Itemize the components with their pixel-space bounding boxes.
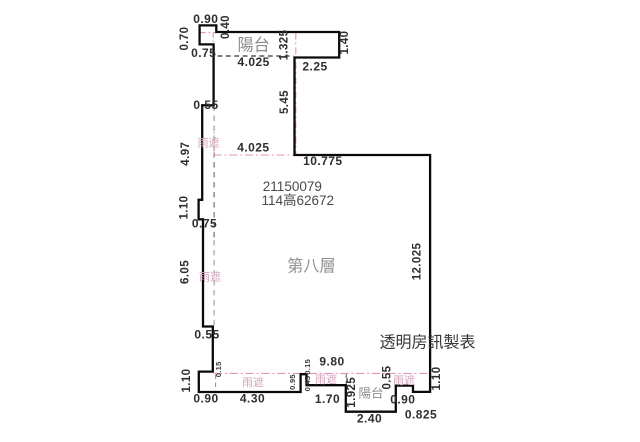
svg-text:2.40: 2.40 [357, 412, 382, 426]
svg-text:4.025: 4.025 [237, 55, 269, 69]
svg-text:2.25: 2.25 [302, 60, 327, 74]
svg-text:雨遮: 雨遮 [393, 373, 415, 387]
svg-text:10.775: 10.775 [303, 154, 342, 168]
svg-text:9.80: 9.80 [319, 355, 344, 369]
svg-text:0.55: 0.55 [381, 365, 393, 389]
svg-text:0.55: 0.55 [194, 327, 219, 341]
svg-text:1.40: 1.40 [339, 31, 351, 55]
svg-text:0.75: 0.75 [191, 46, 216, 60]
svg-text:0.825: 0.825 [405, 408, 437, 422]
svg-text:1.10: 1.10 [431, 367, 443, 391]
svg-text:0.70: 0.70 [179, 27, 191, 51]
svg-text:0.95: 0.95 [288, 374, 297, 390]
svg-text:0.55: 0.55 [193, 98, 218, 112]
svg-text:5.45: 5.45 [279, 90, 291, 114]
svg-text:6.05: 6.05 [179, 260, 191, 284]
svg-text:0.90: 0.90 [193, 12, 218, 26]
svg-text:0.90: 0.90 [390, 393, 415, 407]
svg-text:陽台: 陽台 [238, 36, 270, 54]
svg-text:1.925: 1.925 [346, 377, 358, 408]
svg-text:0.15: 0.15 [214, 361, 223, 377]
svg-text:4.97: 4.97 [180, 142, 192, 166]
svg-text:21150079: 21150079 [263, 179, 322, 194]
svg-text:1.10: 1.10 [181, 369, 193, 393]
svg-text:陽台: 陽台 [358, 385, 383, 400]
svg-text:0.40: 0.40 [220, 15, 232, 39]
svg-text:0.90: 0.90 [193, 391, 218, 405]
svg-text:4.025: 4.025 [237, 140, 269, 154]
svg-text:0.15: 0.15 [303, 359, 312, 375]
svg-text:12.025: 12.025 [412, 243, 424, 281]
svg-text:雨遮: 雨遮 [198, 136, 220, 150]
svg-text:0.45: 0.45 [303, 376, 312, 392]
svg-text:4.30: 4.30 [240, 391, 265, 405]
svg-text:雨遮: 雨遮 [242, 375, 264, 389]
svg-text:雨遮: 雨遮 [199, 270, 221, 284]
svg-text:1.70: 1.70 [315, 392, 340, 406]
svg-text:雨遮: 雨遮 [315, 372, 337, 386]
svg-text:透明房訊製表: 透明房訊製表 [379, 333, 475, 351]
svg-text:114高62672: 114高62672 [262, 192, 335, 208]
svg-text:1.10: 1.10 [179, 196, 191, 220]
svg-text:1.325: 1.325 [279, 29, 291, 60]
svg-text:第八層: 第八層 [287, 258, 336, 276]
svg-text:0.75: 0.75 [192, 216, 217, 230]
